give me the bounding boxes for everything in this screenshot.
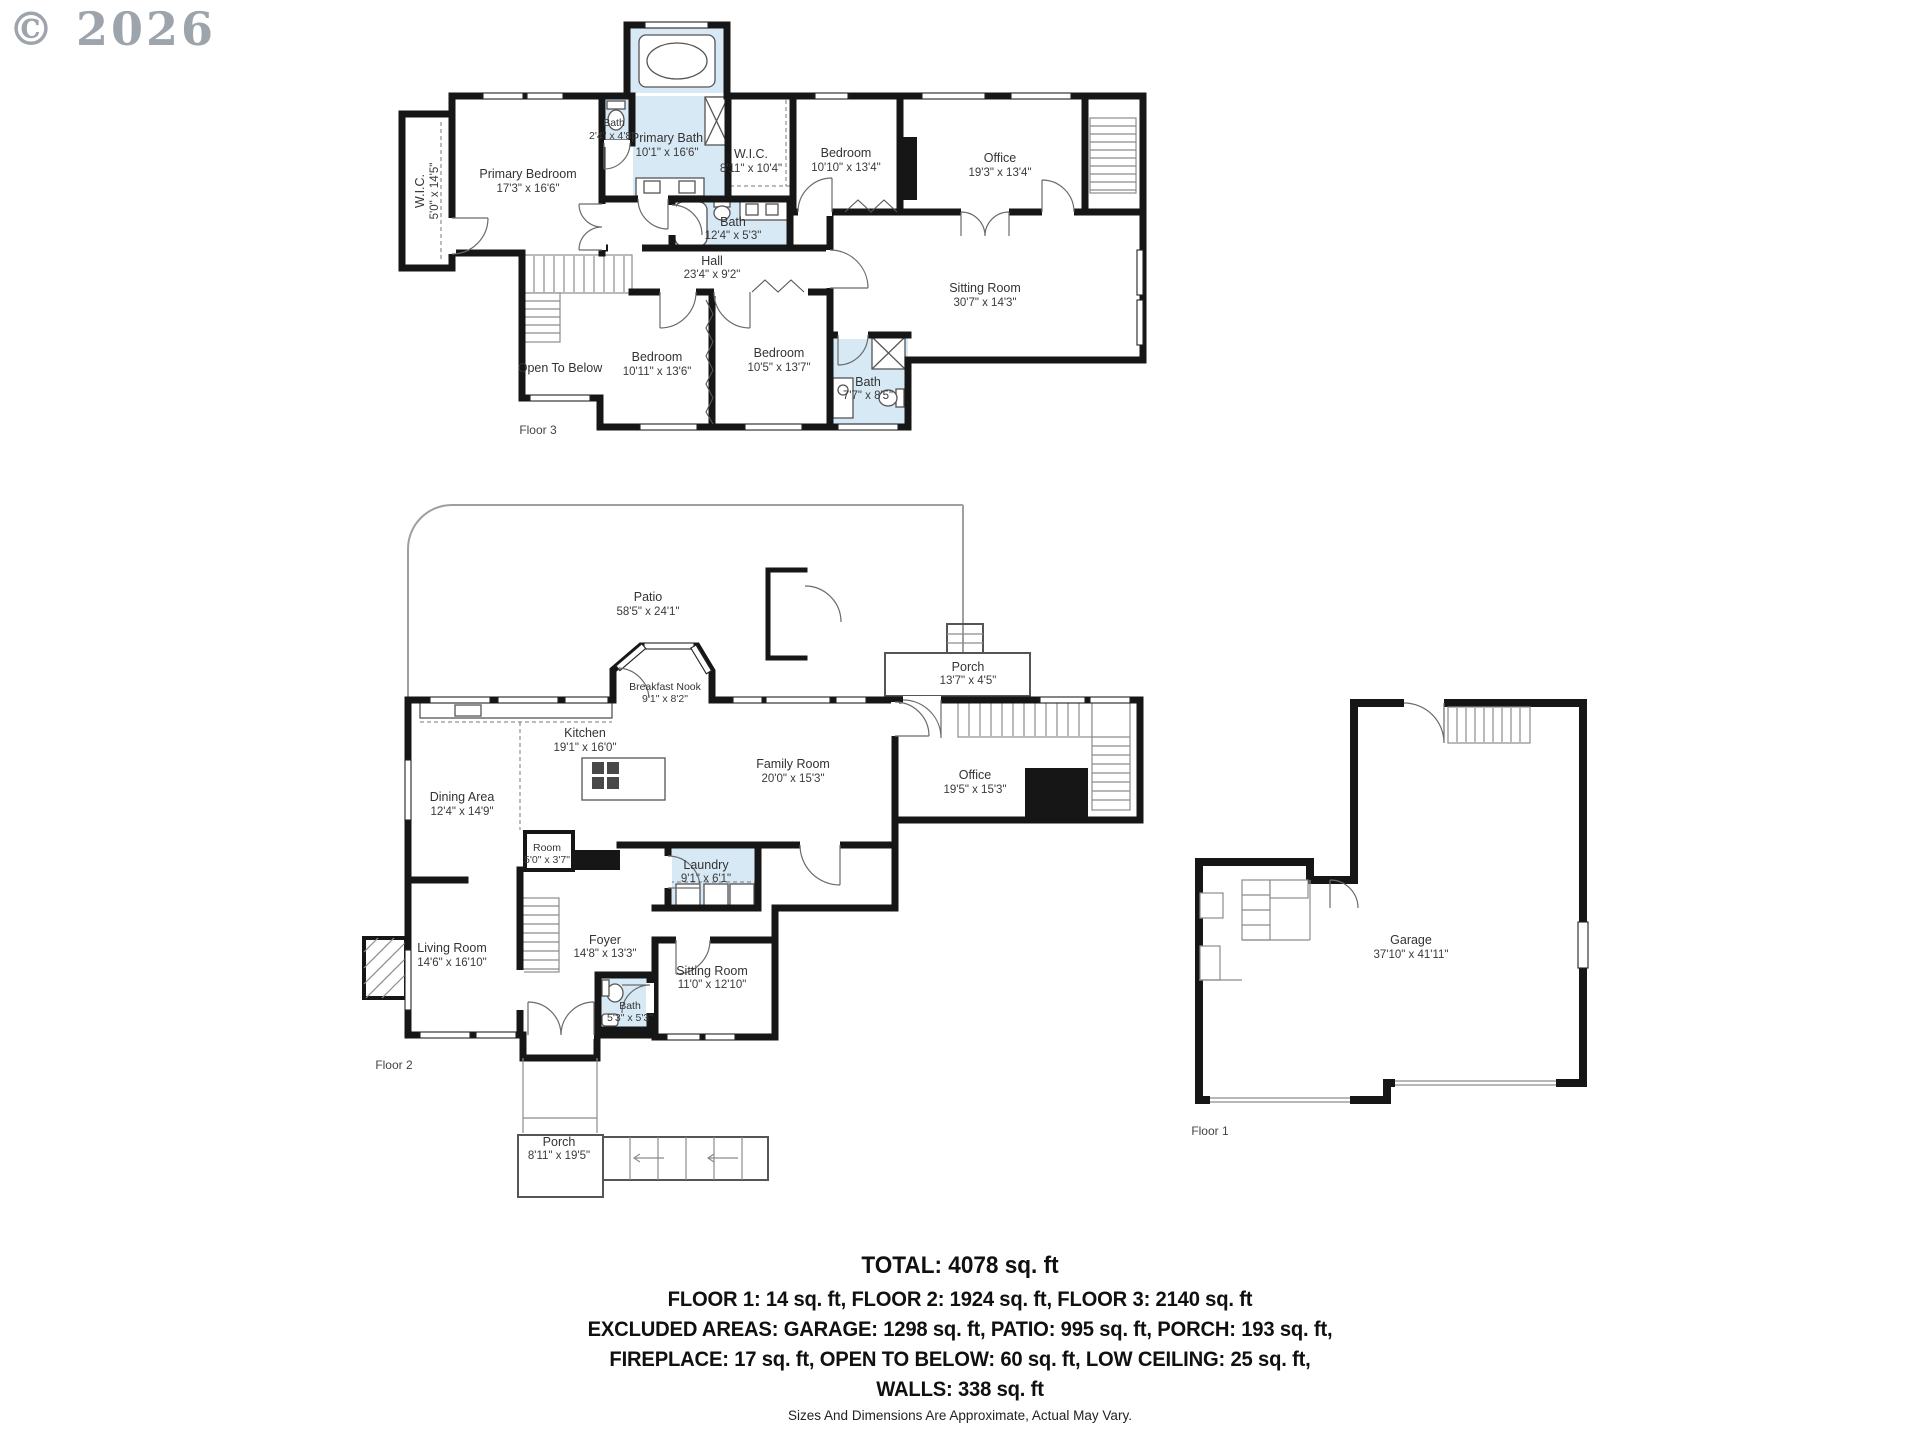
room-label-open-below: Open To Below: [518, 361, 604, 375]
room-label-office3: Office: [984, 151, 1016, 165]
room-dims-laundry: 9'1" x 6'1": [681, 873, 731, 885]
room-dims-office2: 19'5" x 15'3": [943, 784, 1006, 796]
floor3-fireplace: [900, 137, 917, 200]
room-dims-bath-small: 2'4" x 4'8": [589, 130, 635, 142]
room-label-bath2: Bath: [619, 1000, 641, 1012]
room-label-sitting2: Sitting Room: [676, 964, 748, 978]
room-label-primary-bedroom: Primary Bedroom: [479, 167, 576, 181]
room-dims-bedroom3: 10'5" x 13'7": [747, 362, 810, 374]
room-label-dining: Dining Area: [430, 790, 495, 804]
room-label-bedroom2: Bedroom: [632, 350, 683, 364]
room-label-family-room: Family Room: [756, 757, 830, 771]
room-label-foyer: Foyer: [589, 933, 621, 947]
room-label-breakfast-nook: Breakfast Nook: [629, 681, 702, 693]
room-dims-hall: 23'4" x 9'2": [684, 269, 741, 281]
floor2-caption: Floor 2: [375, 1058, 413, 1072]
room-label-porch-top: Porch: [952, 660, 985, 674]
disclaimer-text: Sizes And Dimensions Are Approximate, Ac…: [0, 1408, 1920, 1423]
room-dims-room: 5'0" x 3'7": [524, 854, 570, 866]
room-label-bedroom3: Bedroom: [754, 346, 805, 360]
room-label-kitchen: Kitchen: [564, 726, 606, 740]
floor3-labels: W.I.C. 5'0" x 14'5" Primary Bedroom 17'3…: [413, 117, 1032, 437]
room-label-room: Room: [533, 842, 561, 854]
room-dims-sitting2: 11'0" x 12'10": [678, 979, 747, 991]
room-dims-porch-bottom: 8'11" x 19'5": [528, 1150, 590, 1162]
room-dims-family-room: 20'0" x 15'3": [761, 773, 824, 785]
room-label-porch-bottom: Porch: [543, 1135, 576, 1149]
living-fireplace: [364, 938, 406, 998]
room-label-garage: Garage: [1390, 933, 1432, 947]
floor2-plan: Patio 58'5" x 24'1" Porch 13'7" x 4'5" B…: [364, 505, 1140, 1197]
floorplan-page: © 2026: [0, 0, 1920, 1440]
room-dims-bath2: 5'3" x 5'3": [607, 1012, 653, 1024]
room-dims-bath12: 12'4" x 5'3": [705, 230, 762, 242]
summary-line-fireplace: FIREPLACE: 17 sq. ft, OPEN TO BELOW: 60 …: [58, 1344, 1863, 1374]
room-dims-patio: 58'5" x 24'1": [616, 606, 679, 618]
room-label-bedroom1: Bedroom: [821, 146, 872, 160]
patio-outline: [408, 505, 963, 697]
office2-fireplace: [1025, 768, 1088, 820]
room-label-living: Living Room: [417, 941, 486, 955]
room-dims-office3: 19'3" x 13'4": [968, 167, 1031, 179]
floorplan-canvas: W.I.C. 5'0" x 14'5" Primary Bedroom 17'3…: [0, 0, 1920, 1440]
floor2-labels: Patio 58'5" x 24'1" Porch 13'7" x 4'5" B…: [375, 590, 1006, 1162]
room-dims-bedroom1: 10'10" x 13'4": [811, 162, 880, 174]
summary-line-excluded: EXCLUDED AREAS: GARAGE: 1298 sq. ft, PAT…: [58, 1314, 1863, 1344]
room-dims-foyer: 14'8" x 13'3": [573, 948, 636, 960]
room-label-bath77: Bath: [855, 375, 881, 389]
floor1-plan: Garage 37'10" x 41'11" Floor 1: [1191, 699, 1588, 1138]
room-dims-dining: 12'4" x 14'9": [430, 806, 493, 818]
room-dims-bedroom2: 10'11" x 13'6": [623, 366, 692, 378]
patio-fireplace: [768, 570, 805, 658]
floor1-labels: Garage 37'10" x 41'11" Floor 1: [1191, 933, 1448, 1138]
room-dims-wic2: 8'11" x 10'4": [720, 163, 782, 175]
room-label-primary-bath: Primary Bath: [631, 131, 703, 145]
entry-porch-structure: [518, 1058, 768, 1197]
room-label-bath-small: Bath: [603, 117, 625, 129]
summary-line-floors: FLOOR 1: 14 sq. ft, FLOOR 2: 1924 sq. ft…: [58, 1284, 1863, 1314]
room-label-sitting3: Sitting Room: [949, 281, 1021, 295]
room-label-wic2: W.I.C.: [734, 147, 768, 161]
room-label-patio: Patio: [634, 590, 663, 604]
floor2-stairs: [521, 700, 1130, 972]
summary-total: TOTAL: 4078 sq. ft: [58, 1252, 1863, 1280]
room-label-bath12: Bath: [720, 215, 746, 229]
room-dims-primary-bath: 10'1" x 16'6": [635, 147, 698, 159]
room-dims-sitting3: 30'7" x 14'3": [953, 297, 1016, 309]
room-dims-porch-top: 13'7" x 4'5": [940, 675, 997, 687]
room-dims-kitchen: 19'1" x 16'0": [553, 742, 616, 754]
room-dims-bath77: 7'7" x 8'5": [843, 390, 893, 402]
room-dims-living: 14'6" x 16'10": [417, 957, 486, 969]
room-dims-garage: 37'10" x 41'11": [1373, 949, 1448, 961]
room-label-hall: Hall: [701, 254, 723, 268]
floor2-chase: [573, 850, 620, 870]
room-label-office2: Office: [959, 768, 991, 782]
room-label-wic1: W.I.C.: [413, 174, 427, 208]
floor1-caption: Floor 1: [1191, 1124, 1229, 1138]
room-dims-wic1: 5'0" x 14'5": [429, 163, 441, 220]
floor3-caption: Floor 3: [519, 423, 557, 437]
room-label-laundry: Laundry: [683, 858, 729, 872]
room-dims-primary-bedroom: 17'3" x 16'6": [496, 183, 559, 195]
garage-interior: [1199, 699, 1530, 980]
area-summary: TOTAL: 4078 sq. ft FLOOR 1: 14 sq. ft, F…: [0, 1252, 1920, 1404]
summary-line-walls: WALLS: 338 sq. ft: [58, 1374, 1863, 1404]
room-dims-breakfast-nook: 9'1" x 8'2": [642, 693, 688, 705]
floor3-plan: W.I.C. 5'0" x 14'5" Primary Bedroom 17'3…: [402, 22, 1143, 437]
